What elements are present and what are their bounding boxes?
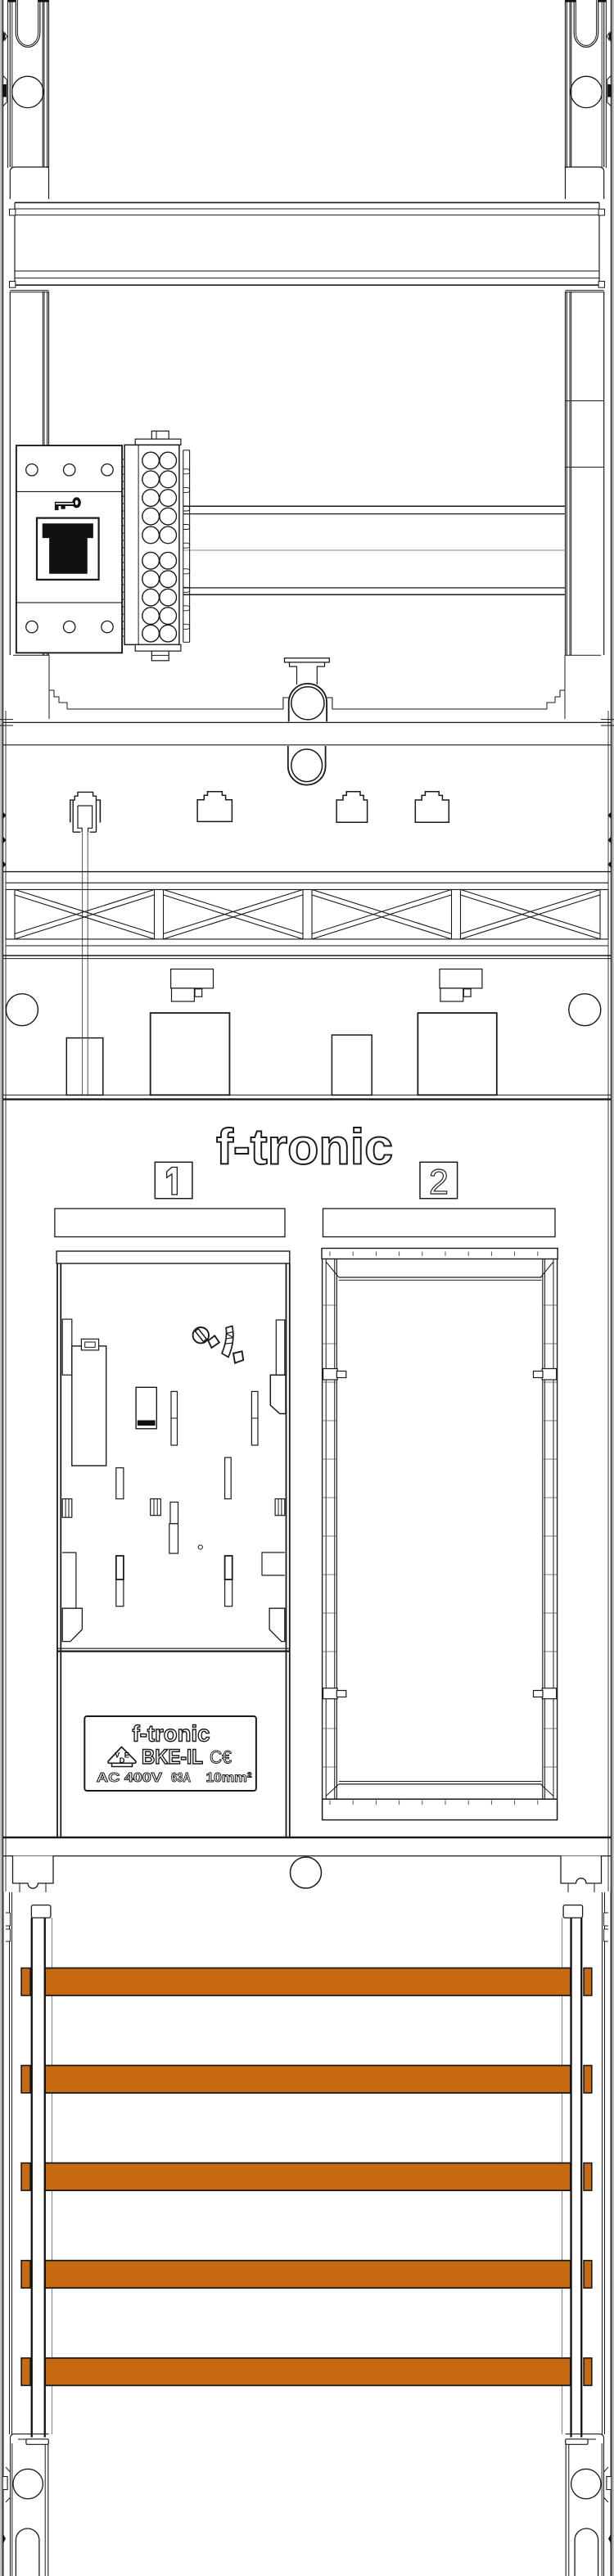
svg-text:D: D <box>120 1756 125 1765</box>
svg-text:E: E <box>124 1751 129 1760</box>
svg-text:f-tronic: f-tronic <box>216 1119 393 1175</box>
svg-text:AC 400V: AC 400V <box>97 1771 162 1785</box>
svg-text:BKE-IL: BKE-IL <box>142 1746 203 1769</box>
svg-text:10mm²: 10mm² <box>206 1771 252 1785</box>
svg-text:63A: 63A <box>171 1771 191 1785</box>
svg-text:f-tronic: f-tronic <box>133 1721 210 1747</box>
svg-text:C€: C€ <box>210 1747 232 1768</box>
svg-text:2: 2 <box>429 1163 449 1202</box>
